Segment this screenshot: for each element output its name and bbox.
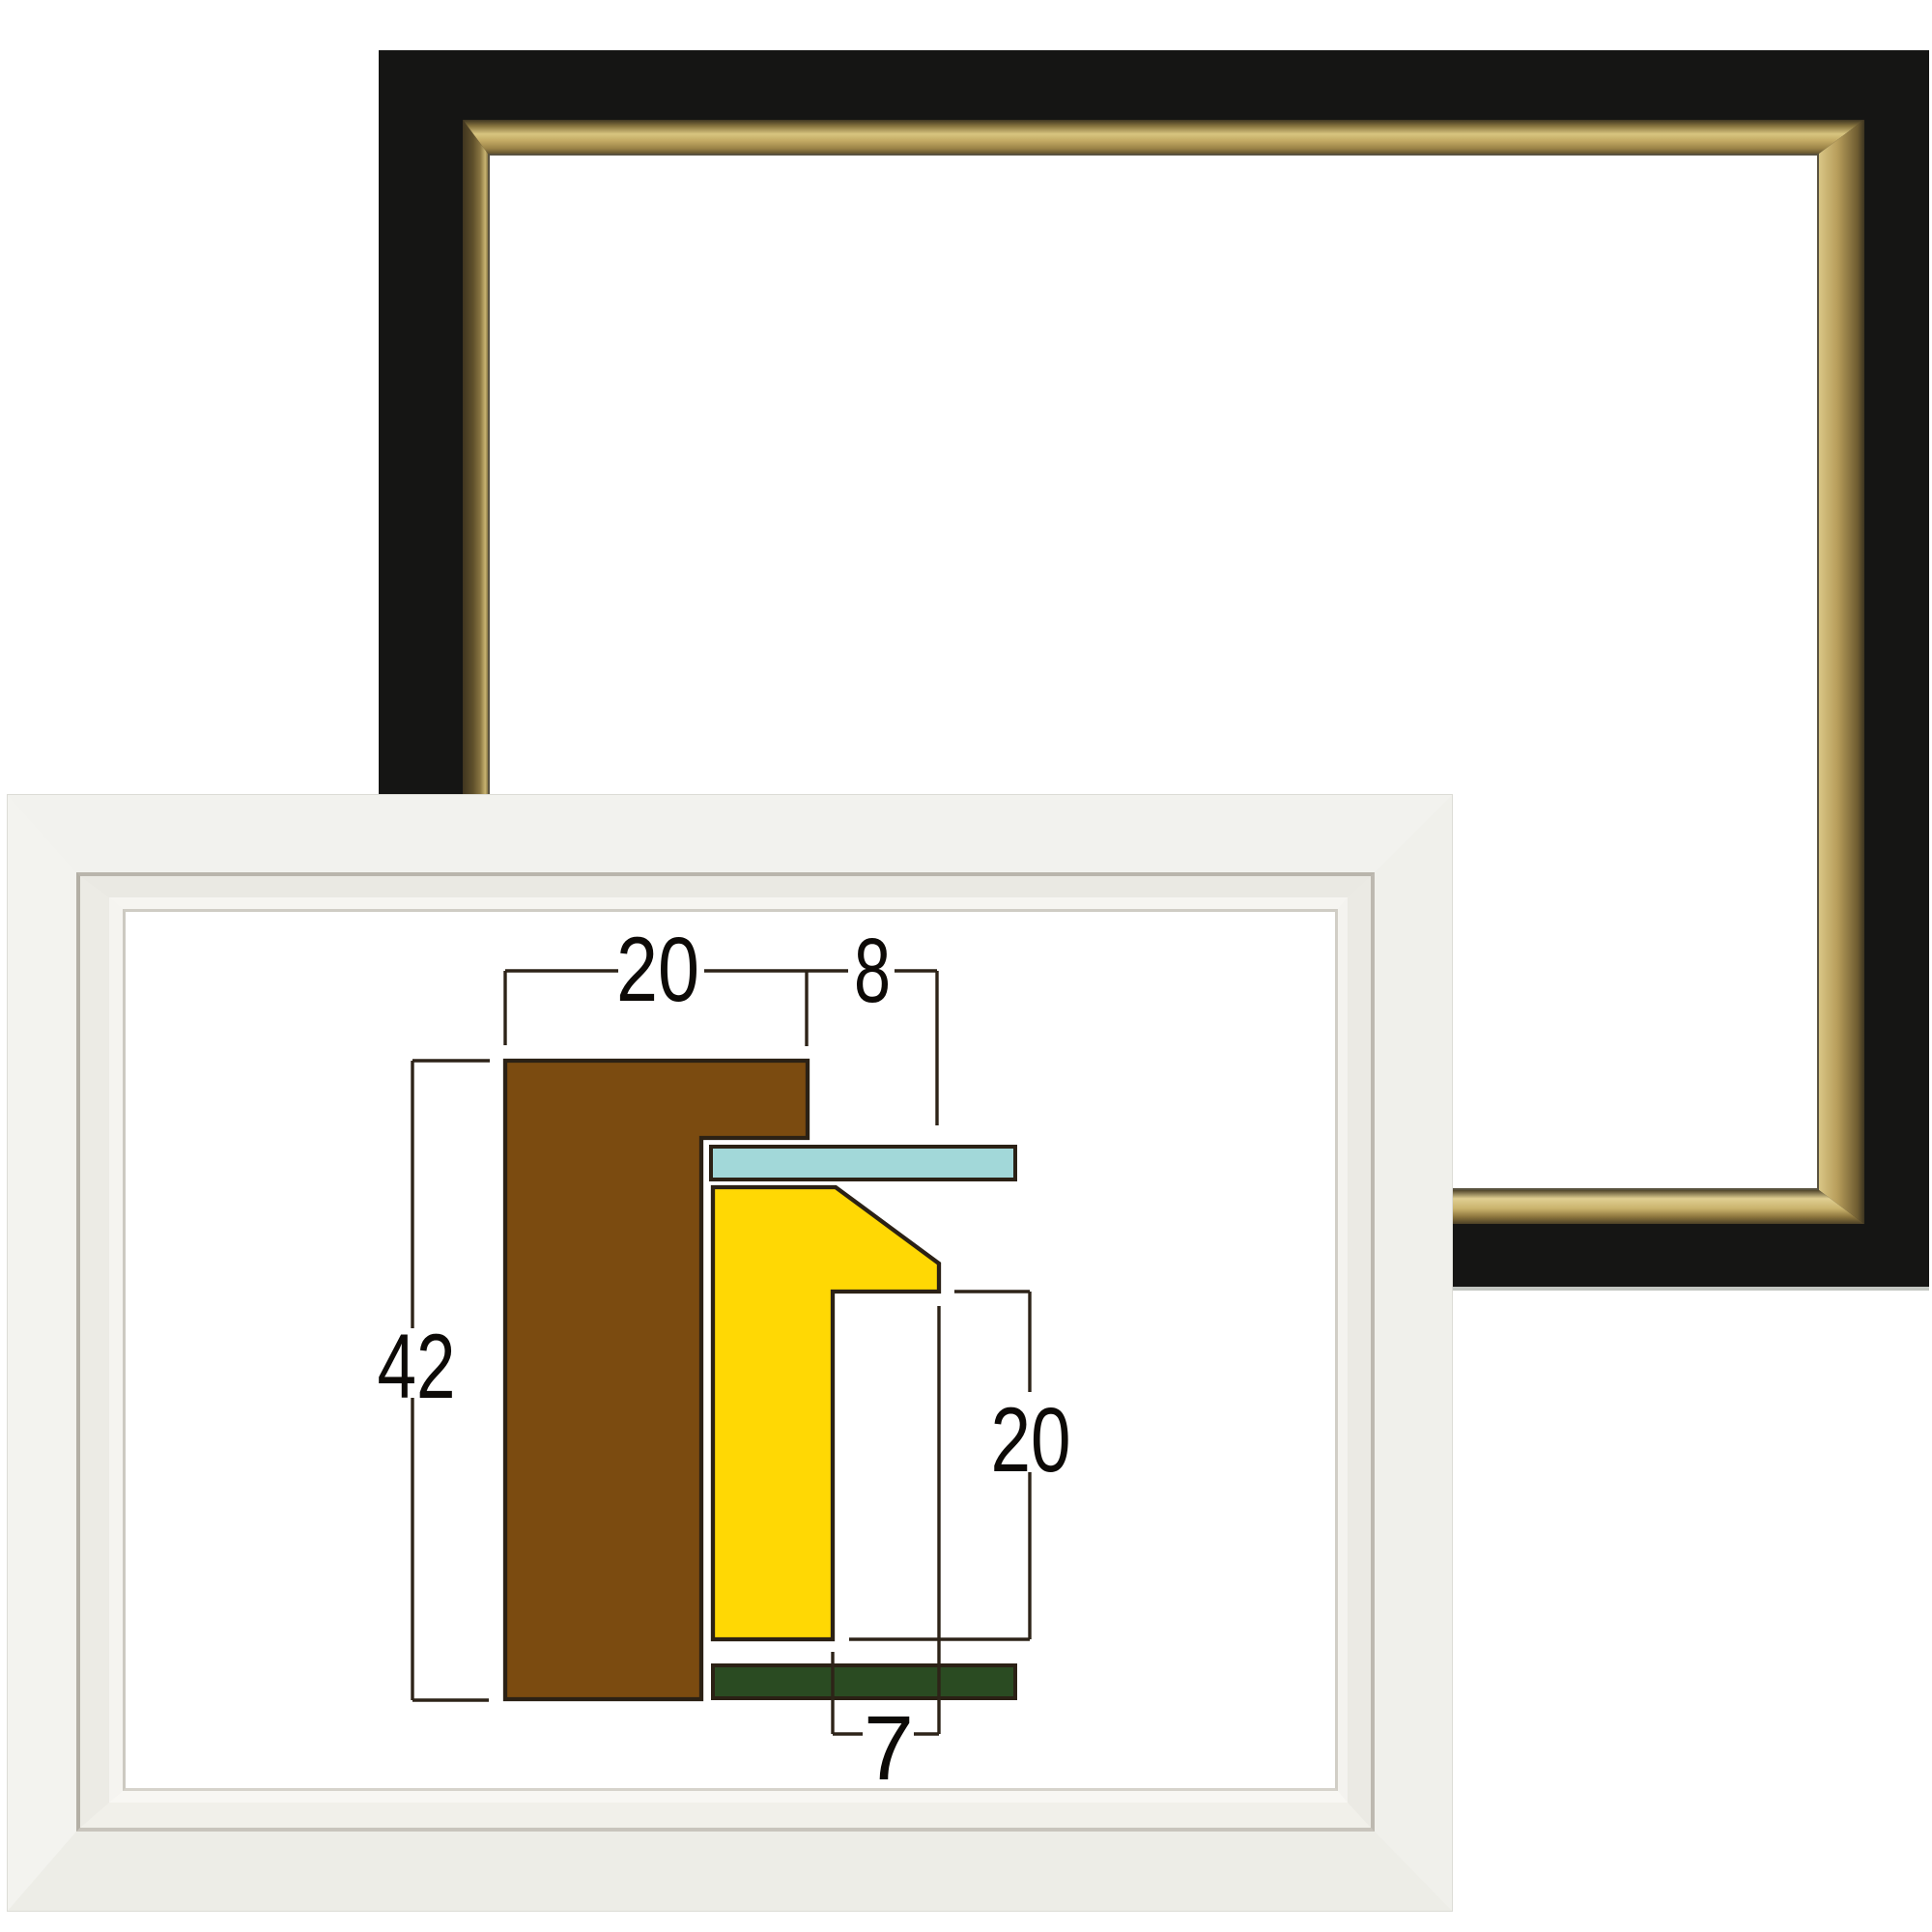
- svg-text:42: 42: [378, 1316, 456, 1418]
- svg-text:20: 20: [616, 919, 699, 1021]
- svg-text:20: 20: [991, 1389, 1071, 1492]
- svg-text:8: 8: [854, 920, 891, 1022]
- svg-text:7: 7: [864, 1697, 914, 1800]
